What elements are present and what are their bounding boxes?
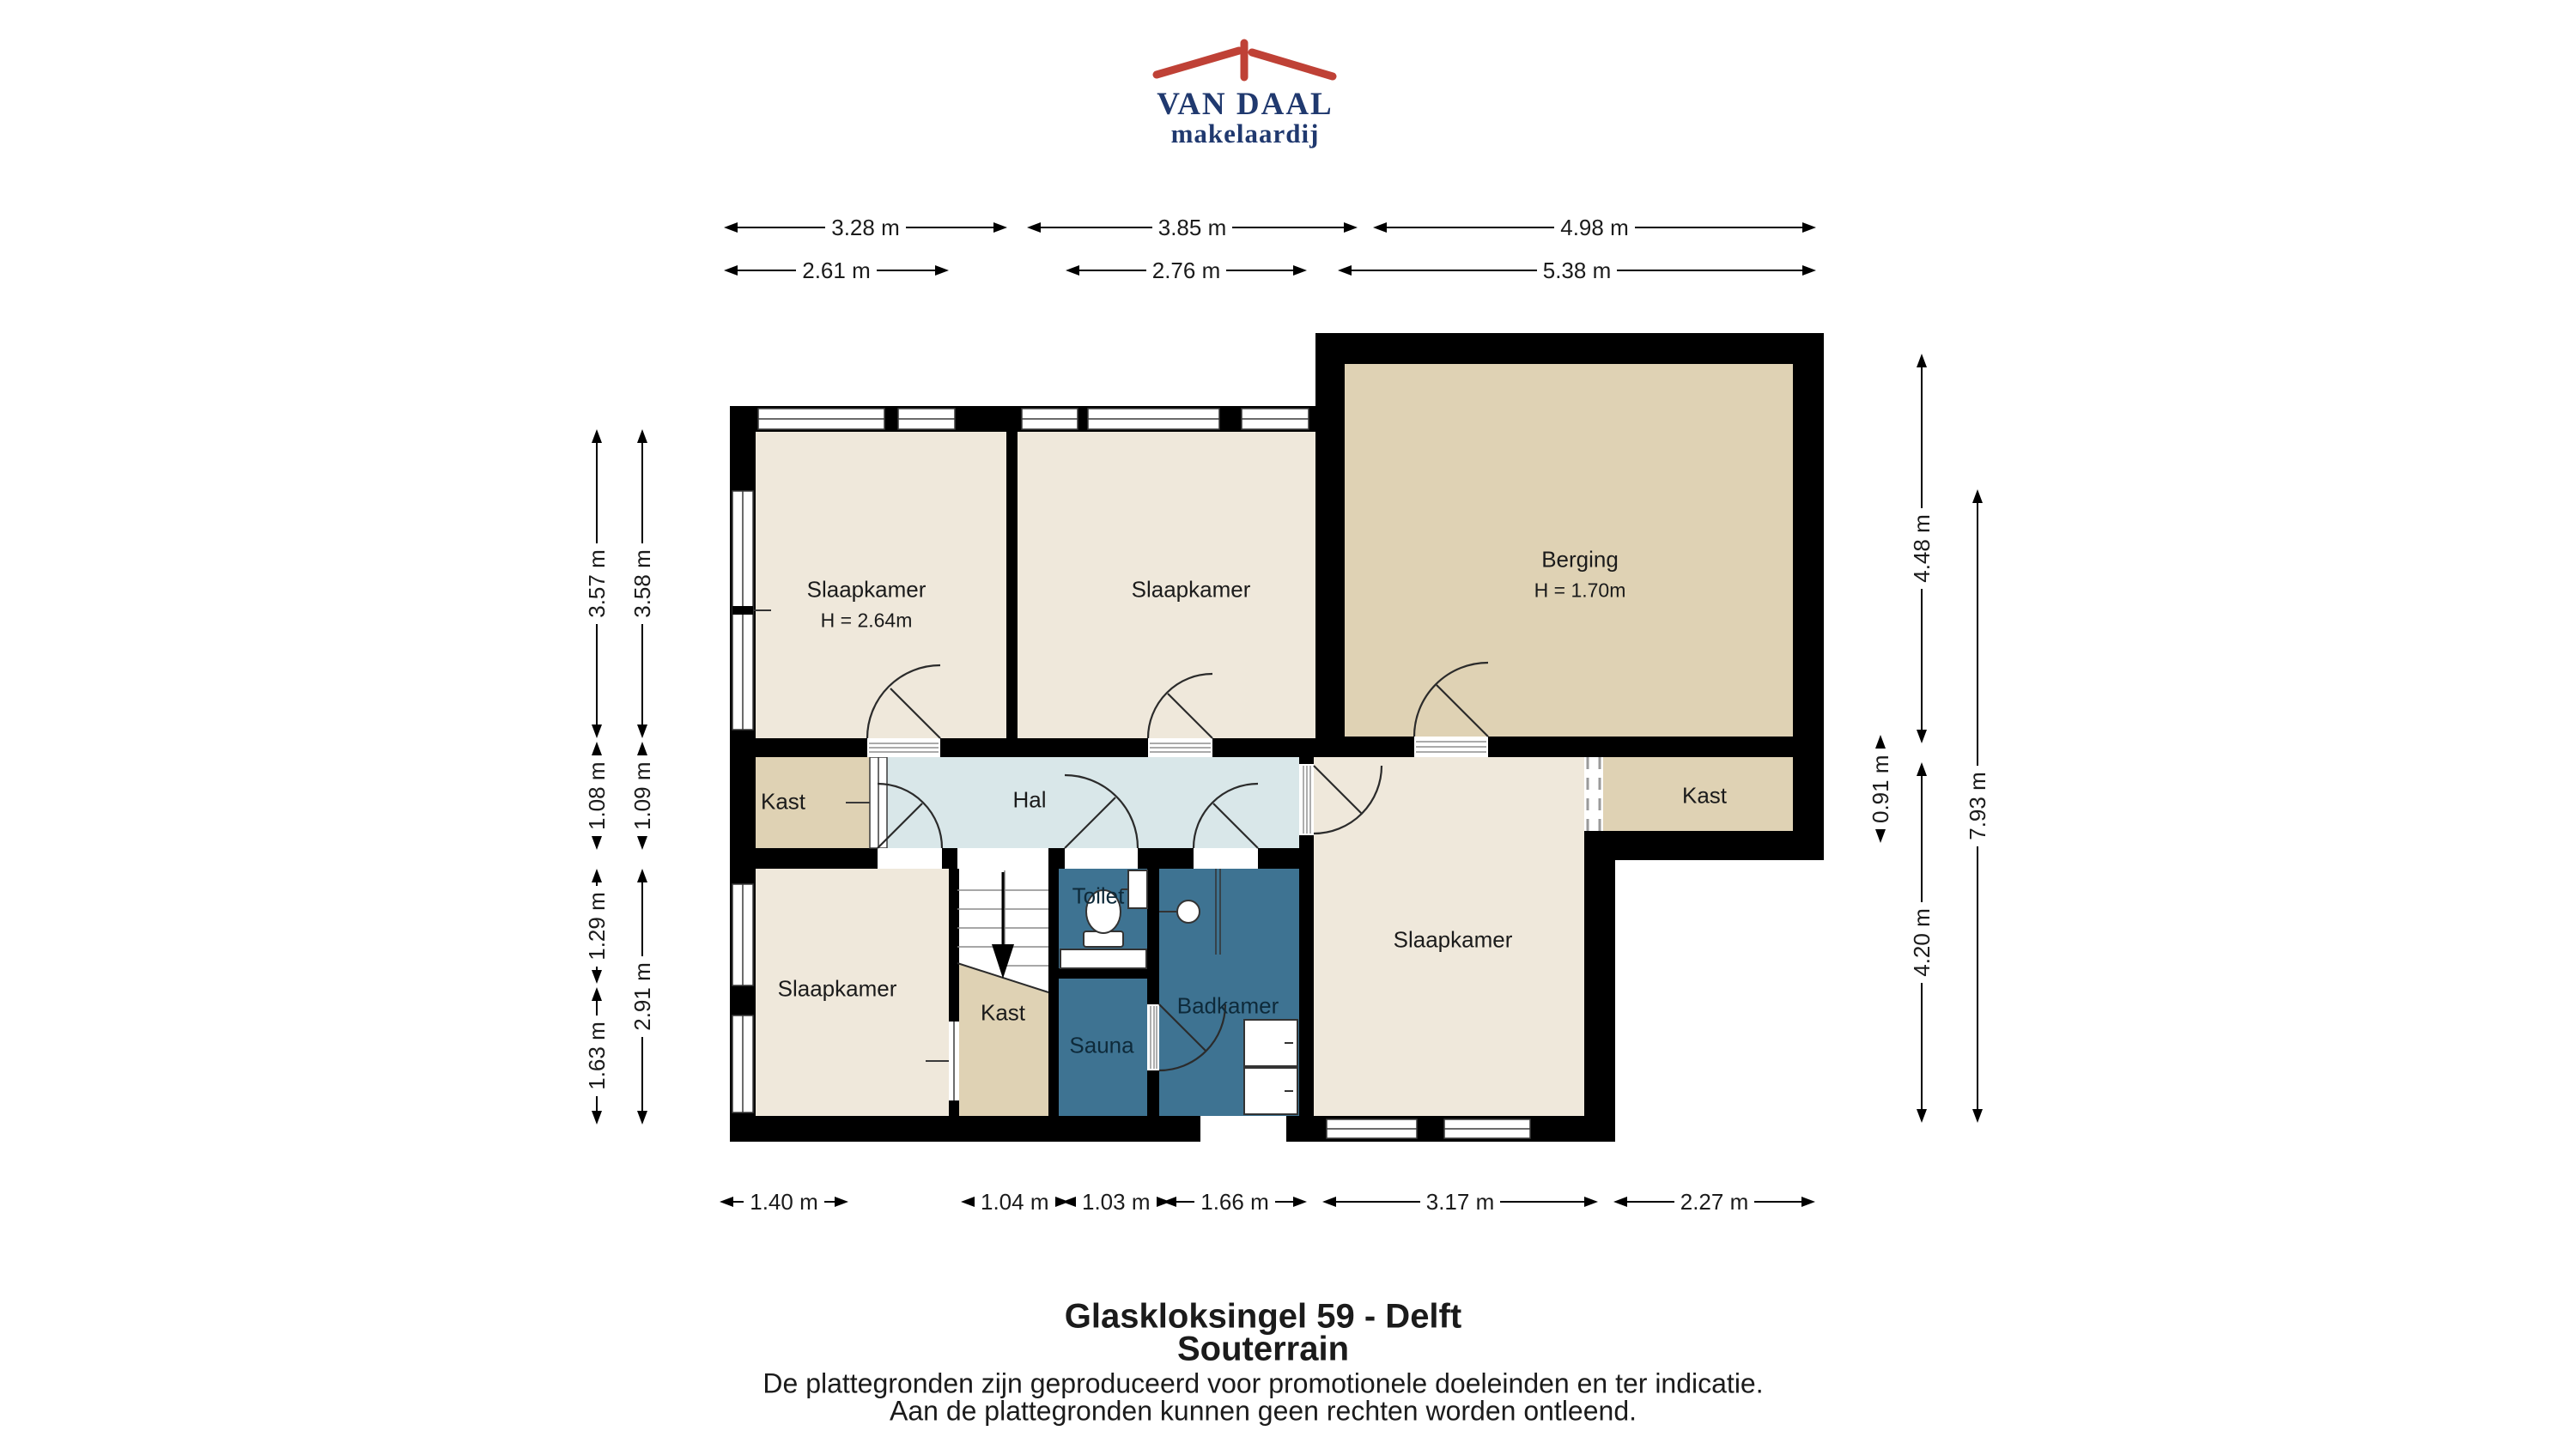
dim-arrow-left-icon [720, 1197, 733, 1207]
window-mullion [732, 606, 753, 615]
dimension-label: 2.27 m [1674, 1191, 1755, 1213]
dim-line [1977, 846, 1978, 1109]
dim-arrow-left-icon [1373, 222, 1387, 233]
dim-arrow-right-icon [993, 222, 1007, 233]
dim-line [824, 1201, 835, 1203]
dimension-top2-1: 2.61 m [724, 259, 949, 282]
dimension-right-inner-3: 4.20 m [1911, 762, 1933, 1123]
dim-line [1336, 1201, 1420, 1203]
dimension-label: 3.58 m [631, 543, 653, 624]
dim-arrow-left-icon [1917, 1109, 1927, 1123]
dim-line [596, 967, 598, 970]
dim-arrow-right-icon [592, 743, 602, 756]
dimension-label: 5.38 m [1537, 259, 1618, 282]
dim-arrow-right-icon [1802, 222, 1816, 233]
room-label-kast-right: Kast [1682, 783, 1727, 809]
dim-arrow-right-icon [1802, 265, 1816, 276]
dimension-label: 2.91 m [631, 956, 653, 1037]
dim-arrow-left-icon [1163, 1197, 1176, 1207]
dimension-label: 1.08 m [586, 756, 608, 837]
dim-line [1232, 227, 1344, 228]
dim-arrow-right-icon [592, 429, 602, 443]
dimension-label: 4.48 m [1911, 508, 1933, 589]
dimension-top2-3: 5.38 m [1338, 259, 1816, 282]
dimension-label: 2.61 m [796, 259, 877, 282]
room-label-slaapkamer-top-middle: Slaapkamer [1132, 577, 1251, 603]
dimension-top1-2: 3.85 m [1027, 216, 1358, 239]
dim-line [1754, 1201, 1801, 1203]
dim-arrow-left-icon [1338, 265, 1352, 276]
floor-title: Souterrain [1177, 1331, 1349, 1369]
dim-arrow-left-icon [1066, 265, 1079, 276]
dim-arrow-right-icon [1917, 762, 1927, 776]
dimension-label: 1.29 m [586, 886, 608, 967]
dimension-left-inner-3: 2.91 m [631, 869, 653, 1125]
dim-arrow-left-icon [1062, 1197, 1076, 1207]
dim-arrow-left-icon [592, 970, 602, 984]
dim-line [1921, 776, 1923, 902]
dim-arrow-left-icon [637, 724, 647, 738]
dim-arrow-left-icon [1027, 222, 1041, 233]
room-label-slaapkamer-right: Slaapkamer [1394, 927, 1513, 954]
dim-line [1921, 367, 1923, 508]
dimension-bottom-2: 1.04 m [961, 1191, 1054, 1213]
dim-line [738, 270, 796, 271]
dim-arrow-right-icon [637, 869, 647, 882]
dimension-label: 0.91 m [1869, 749, 1892, 830]
dim-arrow-right-icon [1875, 736, 1886, 749]
dimension-right-inner-2: 0.91 m [1869, 761, 1892, 843]
dim-arrow-right-icon [935, 265, 949, 276]
dim-line [596, 624, 598, 724]
dimension-label: 3.28 m [825, 216, 906, 239]
dim-arrow-left-icon [1613, 1197, 1627, 1207]
dim-arrow-left-icon [637, 1111, 647, 1125]
dim-line [1921, 983, 1923, 1109]
dim-line [1041, 227, 1152, 228]
dim-arrow-left-icon [592, 1111, 602, 1125]
dim-line [1352, 270, 1537, 271]
dim-line [641, 1037, 643, 1111]
dim-arrow-right-icon [592, 987, 602, 1001]
dimension-left-outer-4: 1.63 m [586, 987, 608, 1125]
dimension-label: 1.09 m [631, 756, 653, 837]
dashed-passage [1584, 757, 1603, 831]
dim-arrow-left-icon [592, 836, 602, 850]
dim-line [596, 1096, 598, 1111]
dimension-label: 1.63 m [586, 1016, 608, 1096]
dim-arrow-right-icon [835, 1197, 848, 1207]
dimension-top1-1: 3.28 m [724, 216, 1007, 239]
dimension-label: 3.57 m [586, 543, 608, 624]
room-label-slaapkamer-top-left: Slaapkamer [807, 577, 927, 603]
dim-arrow-right-icon [1917, 354, 1927, 367]
dim-line [738, 227, 825, 228]
room-label-kast-left: Kast [761, 789, 805, 815]
dim-line [1977, 503, 1978, 766]
dim-line [596, 1001, 598, 1016]
dim-arrow-right-icon [1344, 222, 1358, 233]
dimension-bottom-5: 3.17 m [1322, 1191, 1598, 1213]
dim-line [1617, 270, 1802, 271]
dimension-left-outer-2: 1.08 m [586, 761, 608, 850]
dim-line [1079, 270, 1146, 271]
dim-line [596, 443, 598, 543]
dim-line [1176, 1201, 1194, 1203]
dim-arrow-right-icon [1584, 1197, 1598, 1207]
dimension-label: 4.98 m [1554, 216, 1635, 239]
dimension-left-outer-3: 1.29 m [586, 869, 608, 984]
dimension-label: 1.04 m [975, 1191, 1055, 1213]
dim-arrow-left-icon [1875, 829, 1886, 843]
dimension-top2-2: 2.76 m [1066, 259, 1307, 282]
dim-line [877, 270, 935, 271]
dimension-label: 1.66 m [1194, 1191, 1275, 1213]
dim-arrow-right-icon [1293, 265, 1307, 276]
dimension-right-inner-1: 4.48 m [1911, 354, 1933, 743]
dim-arrow-right-icon [637, 743, 647, 756]
dim-arrow-left-icon [724, 222, 738, 233]
dim-arrow-left-icon [1917, 730, 1927, 743]
dim-arrow-right-icon [1972, 489, 1983, 503]
dimension-label: 7.93 m [1966, 766, 1989, 846]
dim-line [733, 1201, 744, 1203]
room-label-slaapkamer-bottom-left: Slaapkamer [778, 976, 897, 1003]
dim-arrow-right-icon [637, 429, 647, 443]
dimension-bottom-3: 1.03 m [1062, 1191, 1151, 1213]
dim-line [1635, 227, 1802, 228]
disclaimer-line-2: Aan de plattegronden kunnen geen rechten… [890, 1396, 1637, 1428]
dimension-label: 1.03 m [1076, 1191, 1157, 1213]
exterior-door-gap [1200, 1116, 1286, 1142]
dim-line [641, 443, 643, 543]
dim-arrow-left-icon [724, 265, 738, 276]
room-label-sauna: Sauna [1069, 1033, 1133, 1059]
dim-line [1387, 227, 1554, 228]
room-fill-hal [887, 757, 1299, 848]
dimension-left-inner-1: 3.58 m [631, 429, 653, 738]
room-height-berging: H = 1.70m [1534, 579, 1626, 603]
room-label-badkamer: Badkamer [1177, 993, 1279, 1020]
dim-arrow-left-icon [961, 1197, 975, 1207]
dim-arrow-right-icon [1293, 1197, 1307, 1207]
dimension-left-outer-1: 3.57 m [586, 429, 608, 738]
dim-arrow-left-icon [592, 724, 602, 738]
dim-line [1921, 589, 1923, 730]
room-label-kast-middle: Kast [981, 1000, 1025, 1027]
dimension-bottom-1: 1.40 m [720, 1191, 848, 1213]
dim-line [906, 227, 993, 228]
dim-line [1275, 1201, 1293, 1203]
dimension-right-outer-1: 7.93 m [1966, 489, 1989, 1123]
floorplan-page: VAN DAAL makelaardij [0, 0, 2576, 1449]
dim-line [1627, 1201, 1674, 1203]
dim-line [1500, 1201, 1584, 1203]
room-height-slaapkamer-top-left: H = 2.64m [821, 609, 913, 633]
room-label-toilet: Toilet [1072, 883, 1125, 910]
dim-arrow-left-icon [637, 836, 647, 850]
dimension-bottom-6: 2.27 m [1613, 1191, 1815, 1213]
dimension-label: 4.20 m [1911, 902, 1933, 983]
dim-arrow-left-icon [1972, 1109, 1983, 1123]
dim-arrow-left-icon [1322, 1197, 1336, 1207]
room-label-hal: Hal [1012, 787, 1046, 814]
dim-line [1226, 270, 1293, 271]
dimension-label: 1.40 m [744, 1191, 824, 1213]
dimension-top1-3: 4.98 m [1373, 216, 1816, 239]
dimension-label: 3.17 m [1420, 1191, 1501, 1213]
dimension-left-inner-2: 1.09 m [631, 761, 653, 850]
dim-arrow-right-icon [592, 869, 602, 882]
dimension-label: 3.85 m [1152, 216, 1233, 239]
toilet-counter [1060, 949, 1146, 968]
washer-icon [1244, 1020, 1297, 1066]
dim-line [641, 624, 643, 724]
dimension-bottom-4: 1.66 m [1163, 1191, 1307, 1213]
dim-line [596, 882, 598, 886]
dim-line [641, 882, 643, 956]
room-label-berging: Berging [1541, 547, 1619, 573]
dryer-icon [1244, 1068, 1297, 1114]
dim-arrow-right-icon [1801, 1197, 1815, 1207]
dimension-label: 2.76 m [1146, 259, 1227, 282]
